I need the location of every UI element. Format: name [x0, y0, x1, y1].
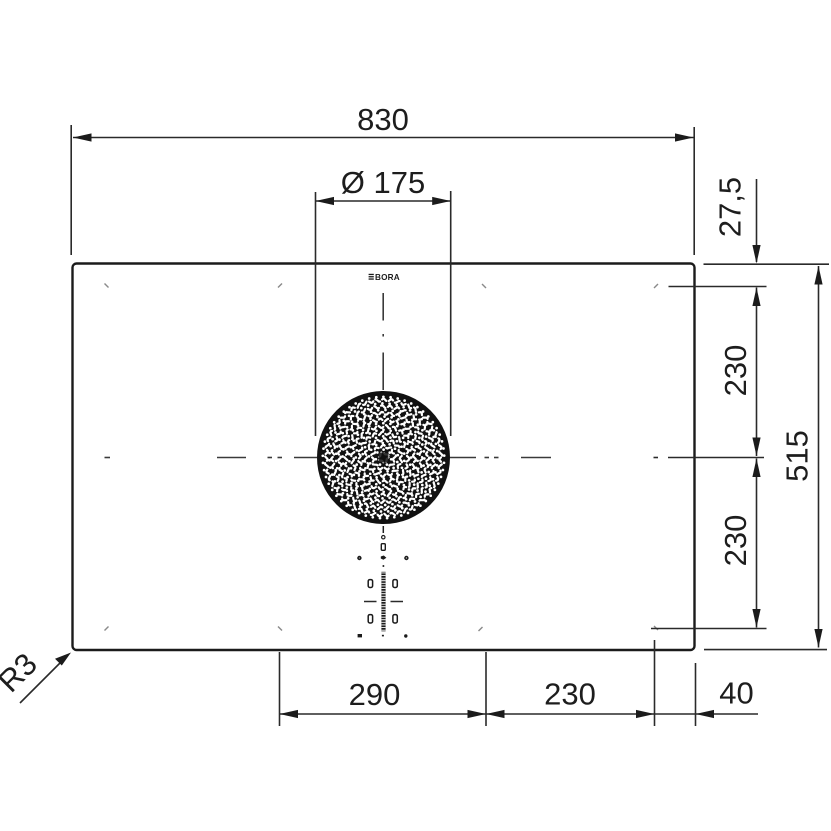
svg-text:515: 515	[780, 430, 815, 482]
svg-text:Ø 175: Ø 175	[341, 165, 425, 200]
svg-text:830: 830	[357, 102, 409, 137]
svg-text:27,5: 27,5	[713, 177, 748, 237]
svg-text:230: 230	[718, 515, 753, 567]
svg-text:40: 40	[719, 676, 753, 711]
svg-text:230: 230	[718, 345, 753, 397]
svg-text:290: 290	[349, 677, 401, 712]
svg-text:BORA: BORA	[375, 273, 400, 282]
svg-text:230: 230	[544, 677, 596, 712]
